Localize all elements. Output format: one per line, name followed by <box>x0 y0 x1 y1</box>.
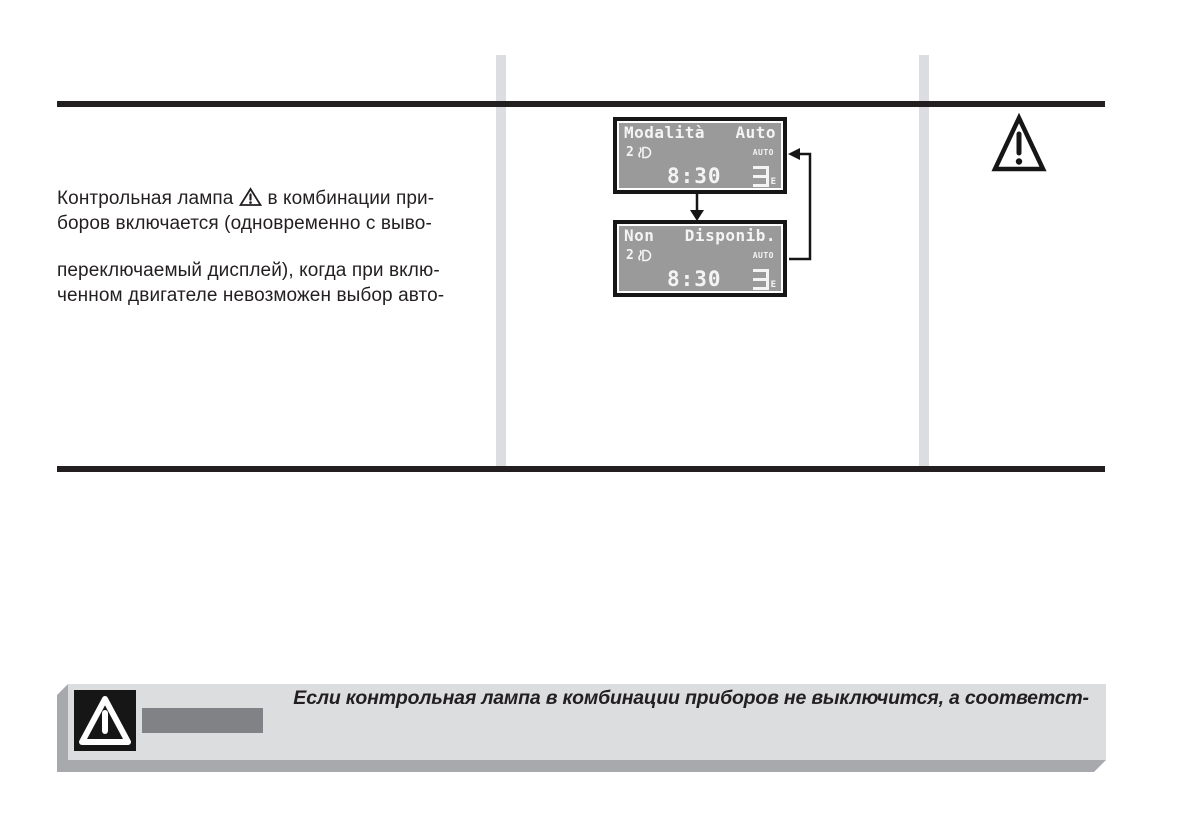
warning-label-bar <box>142 708 263 733</box>
paragraph-line-4: ченном двигателе невозможен выбор авто- <box>57 283 497 308</box>
column-divider-right <box>919 55 929 472</box>
column-divider-left <box>496 55 506 472</box>
flow-arrows <box>600 110 840 310</box>
section-rule-top <box>57 101 1105 107</box>
warning-box-face: Если контрольная лампа в комбинации приб… <box>68 684 1106 760</box>
warning-note-text: Если контрольная лампа в комбинации приб… <box>280 687 1102 710</box>
warning-note-box: Если контрольная лампа в комбинации приб… <box>57 684 1106 772</box>
warning-triangle-inverse-icon <box>74 690 136 751</box>
arrow-down-icon <box>690 194 704 221</box>
paragraph-line-2: боров включается (одновременно с выво- <box>57 211 497 236</box>
paragraph-line-3: переключаемый дисплей), когда при вклю- <box>57 258 497 283</box>
manual-page: Контрольная лампав комбинации при- боров… <box>0 0 1191 839</box>
paragraph-line-1-text-after: в комбинации при- <box>267 188 434 209</box>
paragraph-line-1: Контрольная лампав комбинации при- <box>57 186 497 211</box>
warning-triangle-icon <box>991 113 1047 175</box>
paragraph-line-1-text: Контрольная лампа <box>57 188 233 209</box>
section-rule-bottom <box>57 466 1105 472</box>
warning-triangle-icon <box>239 187 262 207</box>
body-paragraph: Контрольная лампав комбинации при- боров… <box>57 186 497 308</box>
arrow-loop-left-icon <box>788 148 810 259</box>
